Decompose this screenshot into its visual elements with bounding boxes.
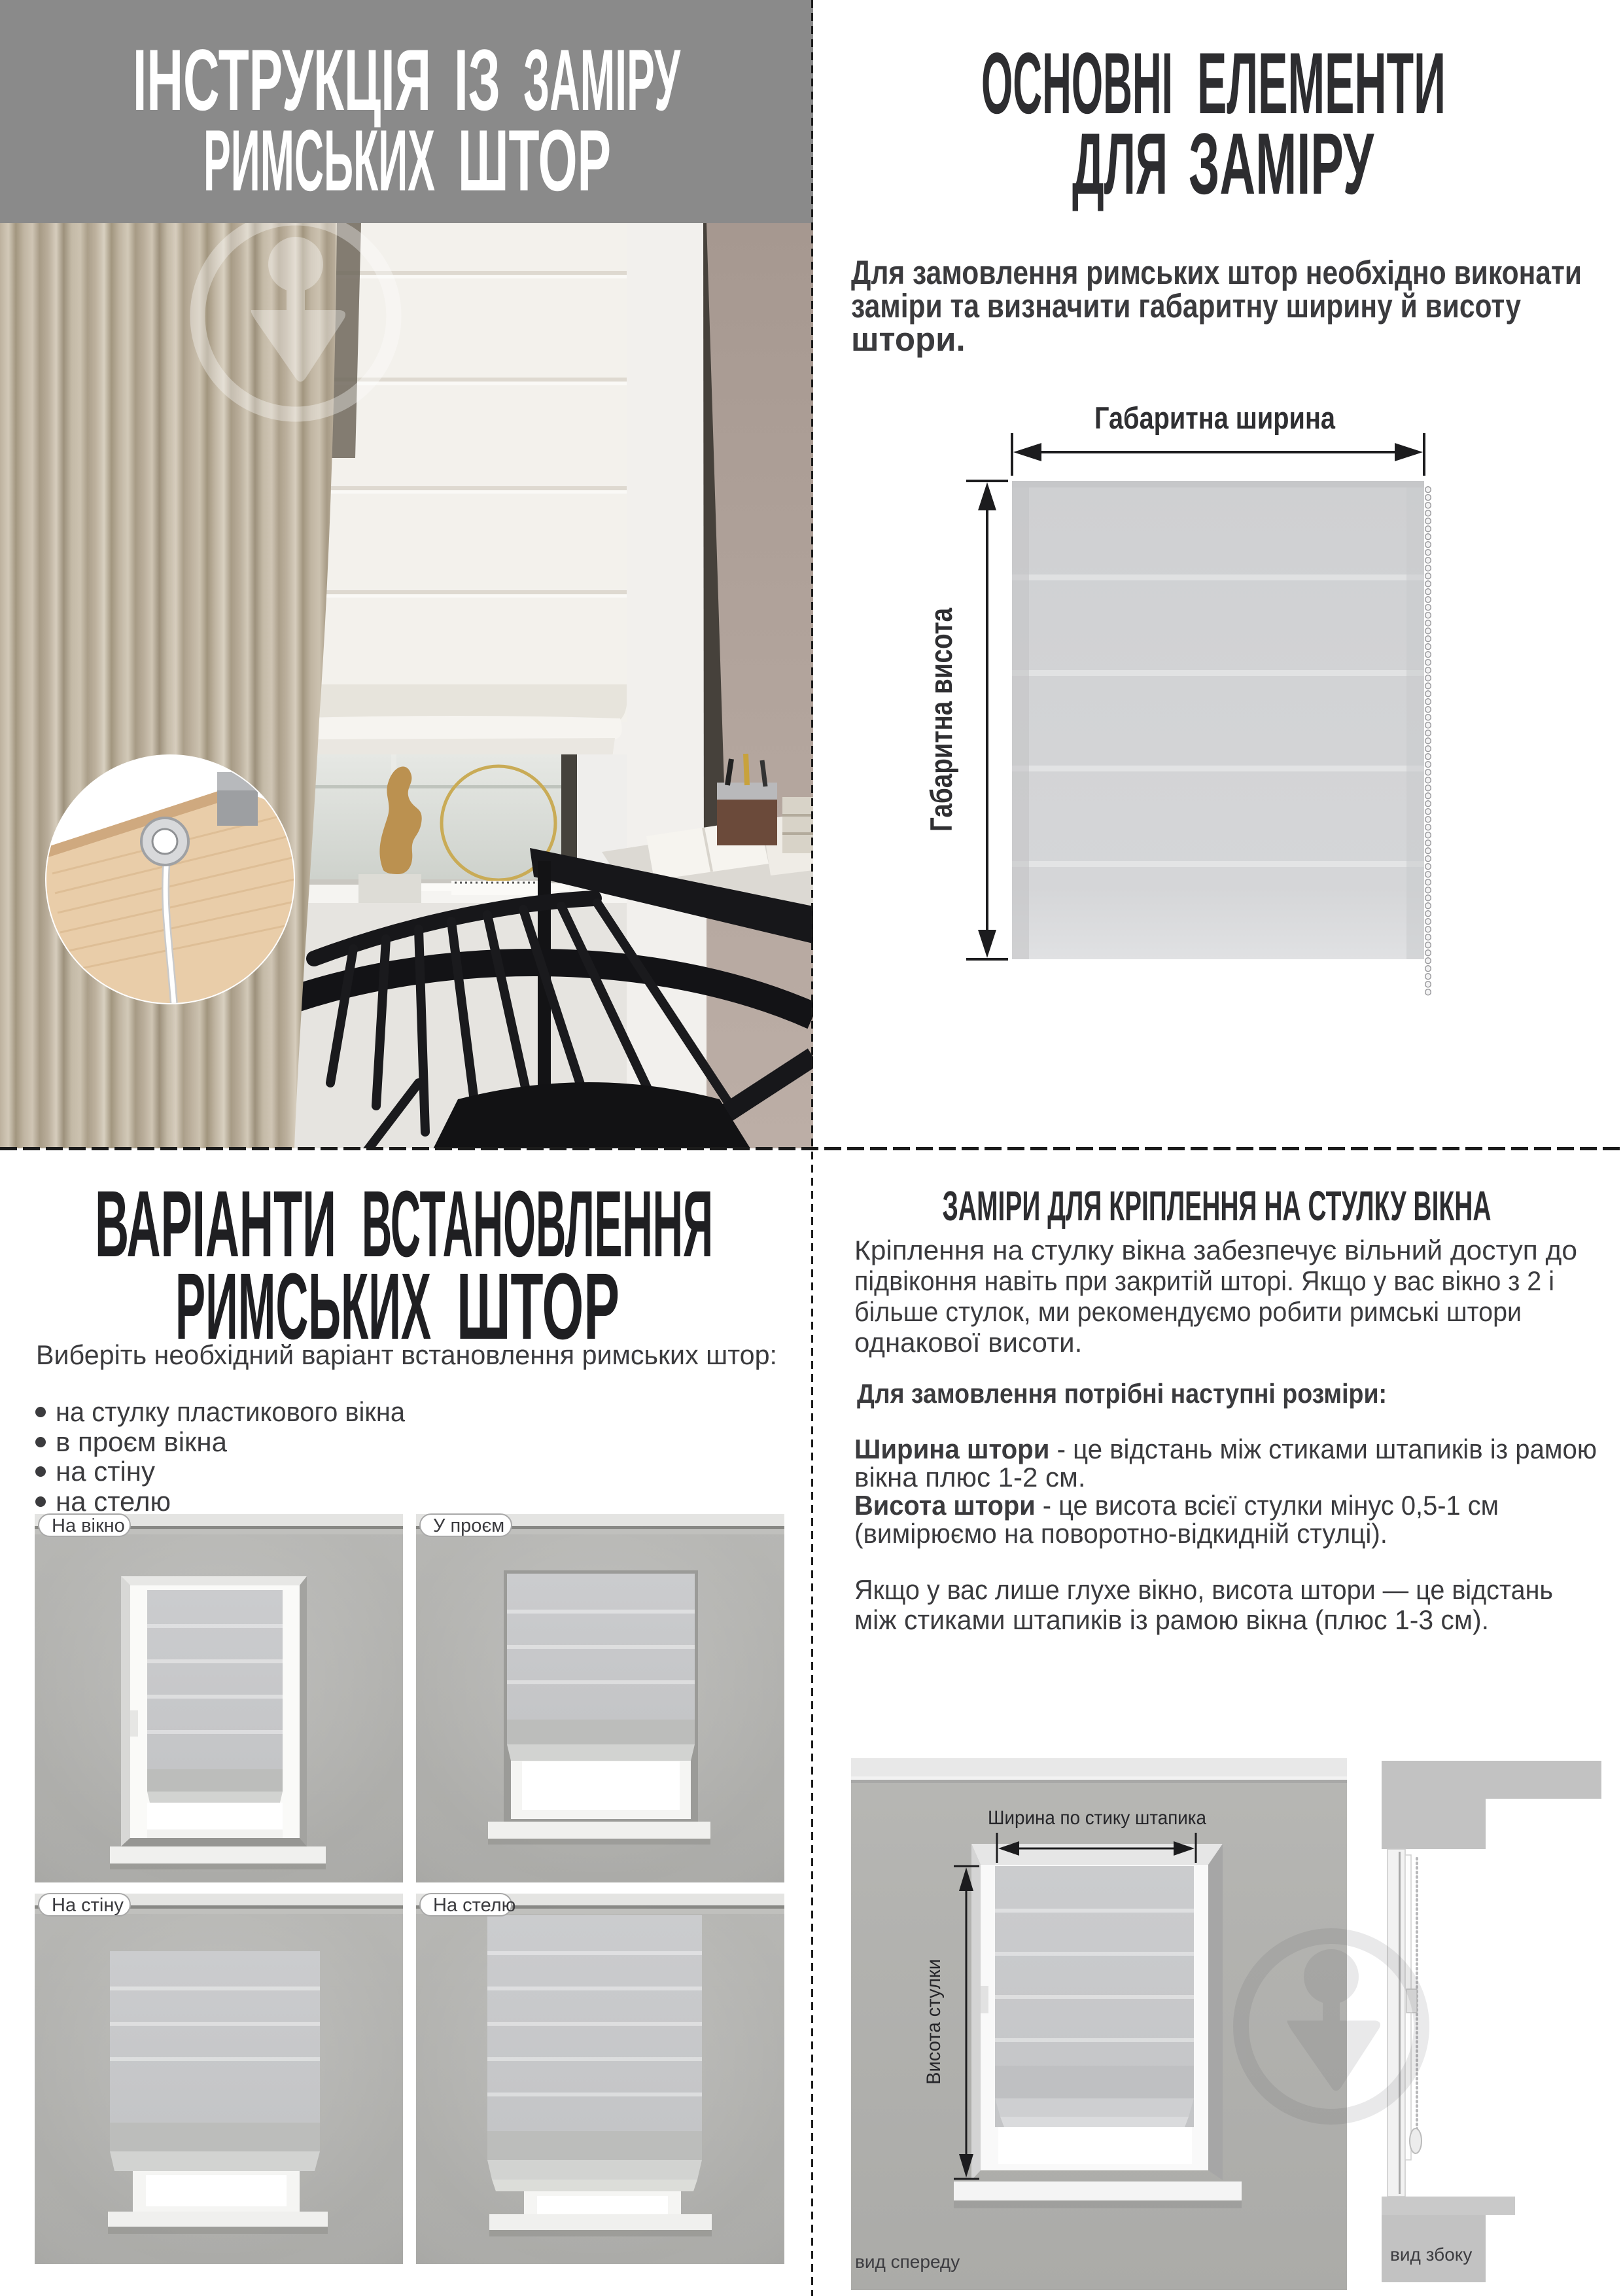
svg-text:ЗАМІРИ ДЛЯ КРІПЛЕННЯ НА СТУЛКУ: ЗАМІРИ ДЛЯ КРІПЛЕННЯ НА СТУЛКУ ВІКНА — [943, 1182, 1492, 1229]
svg-text:вид спереду: вид спереду — [855, 2252, 960, 2272]
svg-text:У проєм: У проєм — [433, 1515, 504, 1536]
svg-text:вікна плюс 1-2 см.: вікна плюс 1-2 см. — [854, 1462, 1086, 1492]
svg-text:ЗАМІРУ: ЗАМІРУ — [1189, 116, 1374, 213]
svg-text:РИМСЬКИХ: РИМСЬКИХ — [203, 113, 435, 209]
svg-text:штори.: штори. — [851, 321, 966, 358]
svg-text:на стулку пластикового вікна: на стулку пластикового вікна — [56, 1396, 406, 1427]
svg-text:ДЛЯ: ДЛЯ — [1072, 116, 1168, 213]
svg-text:в проєм вікна: в проєм вікна — [56, 1426, 228, 1457]
svg-text:вид збоку: вид збоку — [1390, 2244, 1472, 2265]
svg-text:(вимірюємо на поворотно-відкид: (вимірюємо на поворотно-відкидній стулці… — [854, 1518, 1387, 1549]
svg-text:Якщо у вас лише глухе вікно, в: Якщо у вас лише глухе вікно, висота штор… — [854, 1574, 1553, 1605]
svg-text:На стелю: На стелю — [433, 1895, 515, 1916]
svg-text:Ширина по стику штапика: Ширина по стику штапика — [988, 1807, 1206, 1829]
svg-text:між стиками штапиків із рамою: між стиками штапиків із рамою вікна (плю… — [854, 1604, 1489, 1635]
svg-text:підвіконня навіть при закритій: підвіконня навіть при закритій шторі. Як… — [854, 1265, 1554, 1296]
svg-text:Габаритна висота: Габаритна висота — [924, 607, 958, 832]
svg-text:Виберіть необхідний варіант вс: Виберіть необхідний варіант встановлення… — [36, 1339, 777, 1370]
svg-text:Ширина штори - це відстань між: Ширина штори - це відстань між стиками ш… — [854, 1434, 1597, 1464]
svg-text:ШТОР: ШТОР — [458, 113, 611, 209]
svg-text:більше стулок, ми рекомендуємо: більше стулок, ми рекомендуємо робити ри… — [854, 1296, 1522, 1327]
svg-text:Кріплення на стулку вікна забе: Кріплення на стулку вікна забезпечує віл… — [854, 1235, 1577, 1265]
svg-text:на стіну: на стіну — [56, 1456, 155, 1487]
svg-text:заміри та визначити габаритну: заміри та визначити габаритну ширину й в… — [851, 287, 1522, 325]
svg-text:однакової висоти.: однакової висоти. — [854, 1327, 1082, 1358]
svg-text:Висота штори - це висота всієї: Висота штори - це висота всієї стулки мі… — [854, 1490, 1499, 1521]
svg-text:Висота стулки: Висота стулки — [923, 1959, 945, 2085]
svg-text:Для замовлення потрібні наступ: Для замовлення потрібні наступні розміри… — [857, 1378, 1387, 1409]
svg-text:На вікно: На вікно — [52, 1515, 125, 1536]
svg-text:Для замовлення римських штор н: Для замовлення римських штор необхідно в… — [851, 254, 1582, 291]
svg-text:на стелю: на стелю — [56, 1486, 171, 1517]
svg-text:На стіну: На стіну — [52, 1895, 124, 1916]
svg-text:Габаритна ширина: Габаритна ширина — [1094, 400, 1336, 435]
